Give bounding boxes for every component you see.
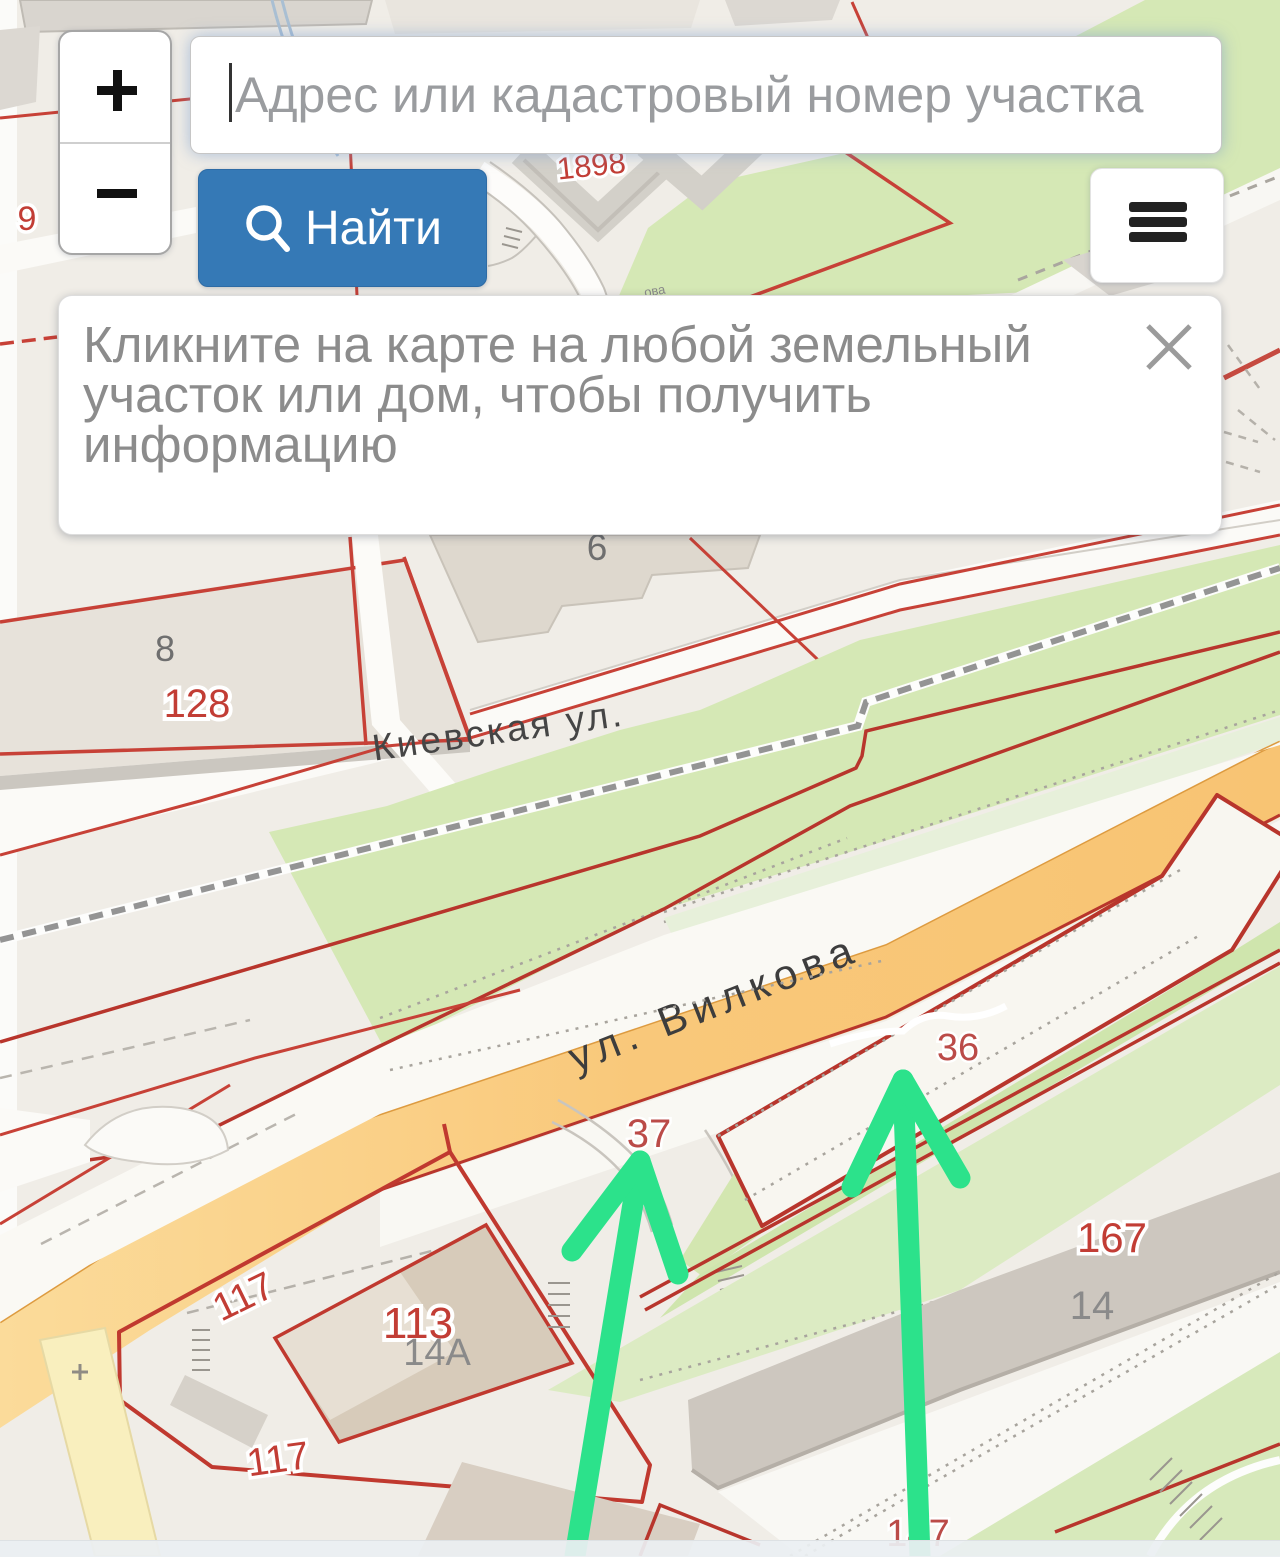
svg-text:8: 8 <box>155 628 175 669</box>
svg-text:37: 37 <box>627 1112 672 1156</box>
svg-text:9: 9 <box>18 200 37 238</box>
svg-text:36: 36 <box>937 1027 979 1069</box>
svg-text:128: 128 <box>164 682 231 726</box>
svg-text:14А: 14А <box>403 1332 471 1374</box>
svg-text:167: 167 <box>1077 1214 1147 1261</box>
svg-text:14: 14 <box>1070 1284 1115 1328</box>
